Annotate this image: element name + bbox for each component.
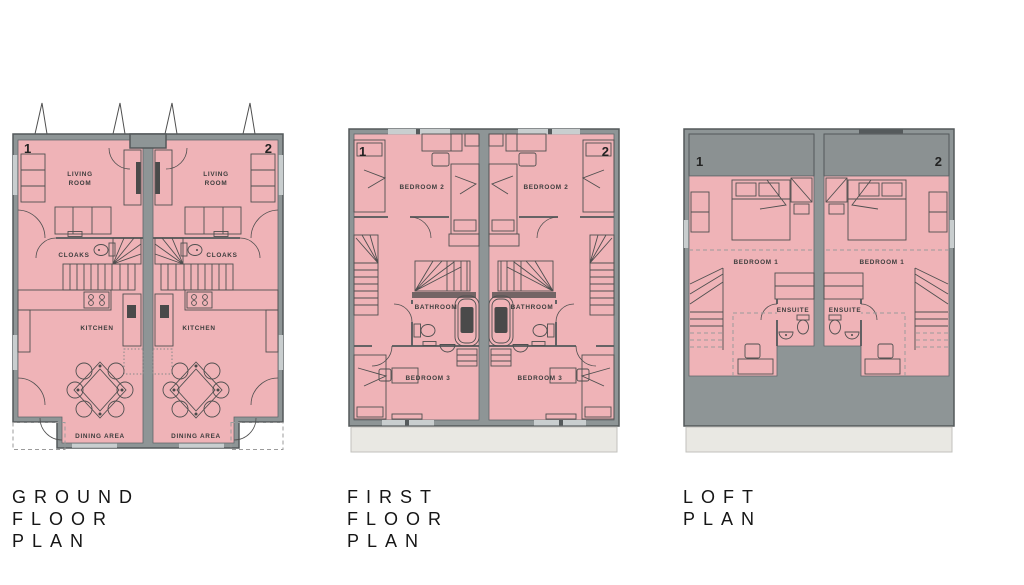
room-label: BEDROOM 1 <box>859 259 904 266</box>
ground-floor-plan: 1 2 LIVING ROOM LIVING ROOM CLOAKS CLOAK… <box>12 100 284 452</box>
footprint-below <box>686 427 952 452</box>
room-label: CLOAKS <box>206 252 237 259</box>
unit2-floor-area <box>824 176 949 376</box>
room-label: LIVING <box>203 171 229 178</box>
title-line: PLAN <box>347 530 449 552</box>
room-label: BEDROOM 2 <box>399 184 444 191</box>
room-label: LIVING <box>67 171 93 178</box>
title-line: PLAN <box>683 508 762 530</box>
room-label: CLOAKS <box>58 252 89 259</box>
room-label: ROOM <box>205 180 228 187</box>
title-line: GROUND <box>12 486 140 508</box>
unit-number: 1 <box>359 144 366 159</box>
ground-floor-plan-title: GROUND FLOOR PLAN <box>12 486 140 552</box>
title-line: FLOOR <box>12 508 140 530</box>
loft-plan: 1 2 BEDROOM 1 BEDROOM 1 ENSUITE ENSUITE <box>683 128 955 454</box>
unit1-floor-area <box>689 176 814 376</box>
room-label: ENSUITE <box>829 307 862 314</box>
door-marker-icon <box>165 103 177 134</box>
first-floor-plan: 1 2 BEDROOM 2 BEDROOM 2 BATHROOM BATHROO… <box>348 128 620 454</box>
unit-number: 2 <box>602 144 609 159</box>
unit2-roof-void <box>824 134 949 176</box>
room-label: BEDROOM 2 <box>523 184 568 191</box>
title-line: FLOOR <box>347 508 449 530</box>
footprint-below <box>351 427 617 452</box>
unit-number: 1 <box>696 154 703 169</box>
room-label: ENSUITE <box>777 307 810 314</box>
title-line: PLAN <box>12 530 140 552</box>
first-floor-plan-title: FIRST FLOOR PLAN <box>347 486 449 552</box>
room-label: BATHROOM <box>415 304 458 311</box>
unit-number: 1 <box>24 141 31 156</box>
door-marker-icon <box>243 103 255 134</box>
room-label: DINING AREA <box>171 433 221 440</box>
unit1-roof-void <box>689 134 814 176</box>
porch-recess <box>130 134 166 148</box>
loft-plan-title: LOFT PLAN <box>683 486 762 530</box>
room-label: DINING AREA <box>75 433 125 440</box>
roof-ridge-mark <box>859 129 903 134</box>
room-label: BEDROOM 3 <box>517 375 562 382</box>
unit-number: 2 <box>265 141 272 156</box>
title-line: LOFT <box>683 486 762 508</box>
door-marker-icon <box>35 103 47 134</box>
room-label: KITCHEN <box>182 325 215 332</box>
title-line: FIRST <box>347 486 449 508</box>
unit-number: 2 <box>935 154 942 169</box>
room-label: BATHROOM <box>511 304 554 311</box>
room-label: ROOM <box>69 180 92 187</box>
door-marker-icon <box>113 103 125 134</box>
room-label: BEDROOM 3 <box>405 375 450 382</box>
floorplan-sheet: 1 2 LIVING ROOM LIVING ROOM CLOAKS CLOAK… <box>0 0 1024 585</box>
room-label: KITCHEN <box>80 325 113 332</box>
room-label: BEDROOM 1 <box>733 259 778 266</box>
